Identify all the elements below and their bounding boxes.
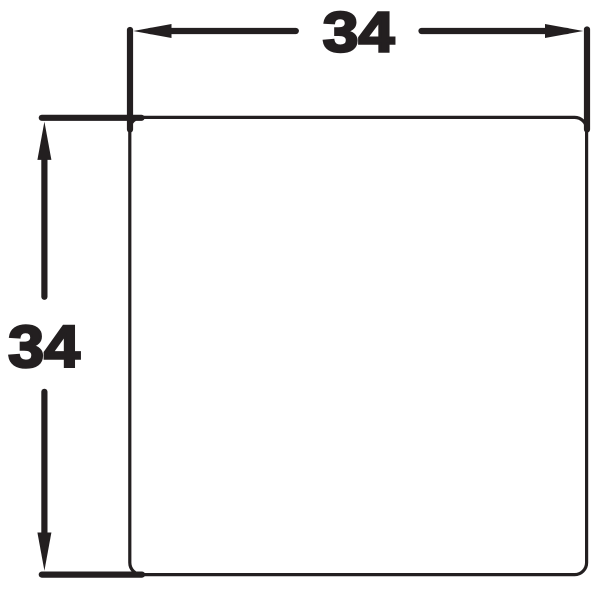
svg-text:34: 34 xyxy=(323,0,395,64)
svg-text:34: 34 xyxy=(8,314,80,380)
